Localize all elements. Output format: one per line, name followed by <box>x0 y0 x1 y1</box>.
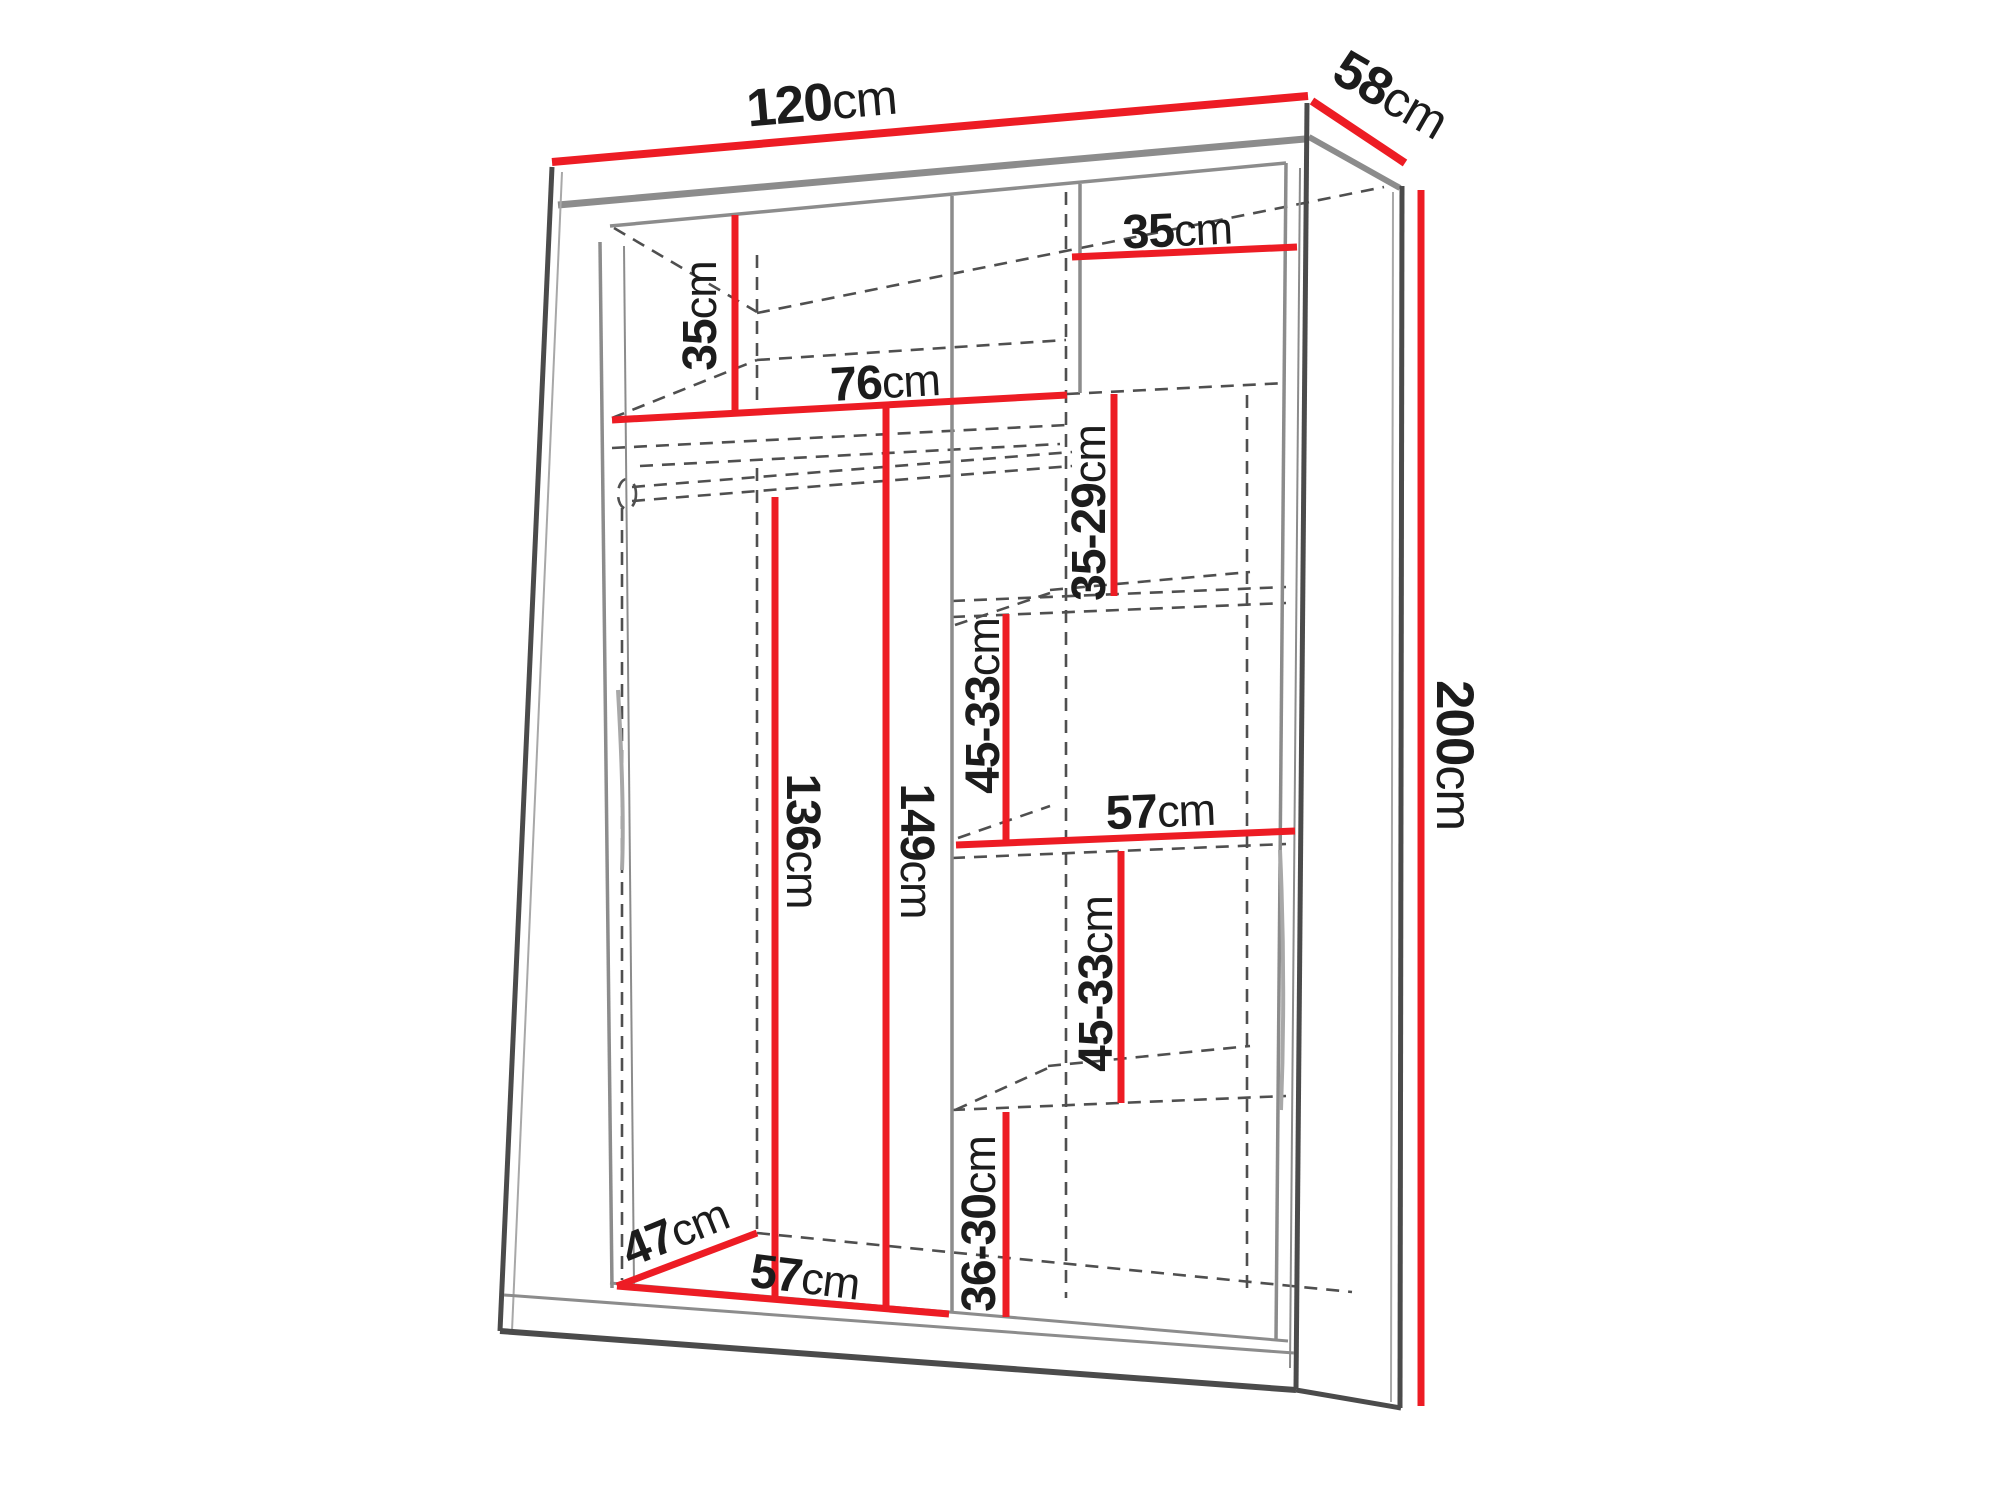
dim-label-height: 200cm <box>1425 680 1484 830</box>
dim-label-left-height-inner: 136cm <box>776 773 829 908</box>
dim-label-right-gap-top: 35-29cm <box>1063 425 1116 601</box>
dim-label-right-shelf-width: 57cm <box>1105 783 1217 841</box>
dim-label-top-left-height: 35cm <box>674 261 727 370</box>
dim-label-right-gap-bottom: 36-30cm <box>953 1136 1006 1312</box>
back-right-edge <box>1400 186 1402 1408</box>
dim-label-right-gap-lower: 45-33cm <box>1070 896 1123 1072</box>
dim-label-left-width: 76cm <box>829 353 941 412</box>
dim-right-gap-bottom: 36-30cm <box>953 1112 1006 1317</box>
diagram-canvas: 120cm 58cm 200cm 35cm 35cm 76cm 35-29cm <box>0 0 2000 1500</box>
dim-label-left-height-full: 149cm <box>890 783 943 918</box>
dim-label-right-gap-upper: 45-33cm <box>957 618 1010 794</box>
dim-label-width: 120cm <box>744 67 899 139</box>
dim-height-right: 200cm <box>1421 190 1484 1406</box>
wardrobe-dimension-diagram: 120cm 58cm 200cm 35cm 35cm 76cm 35-29cm <box>0 0 2000 1500</box>
dim-label-top-right-width: 35cm <box>1121 202 1233 260</box>
